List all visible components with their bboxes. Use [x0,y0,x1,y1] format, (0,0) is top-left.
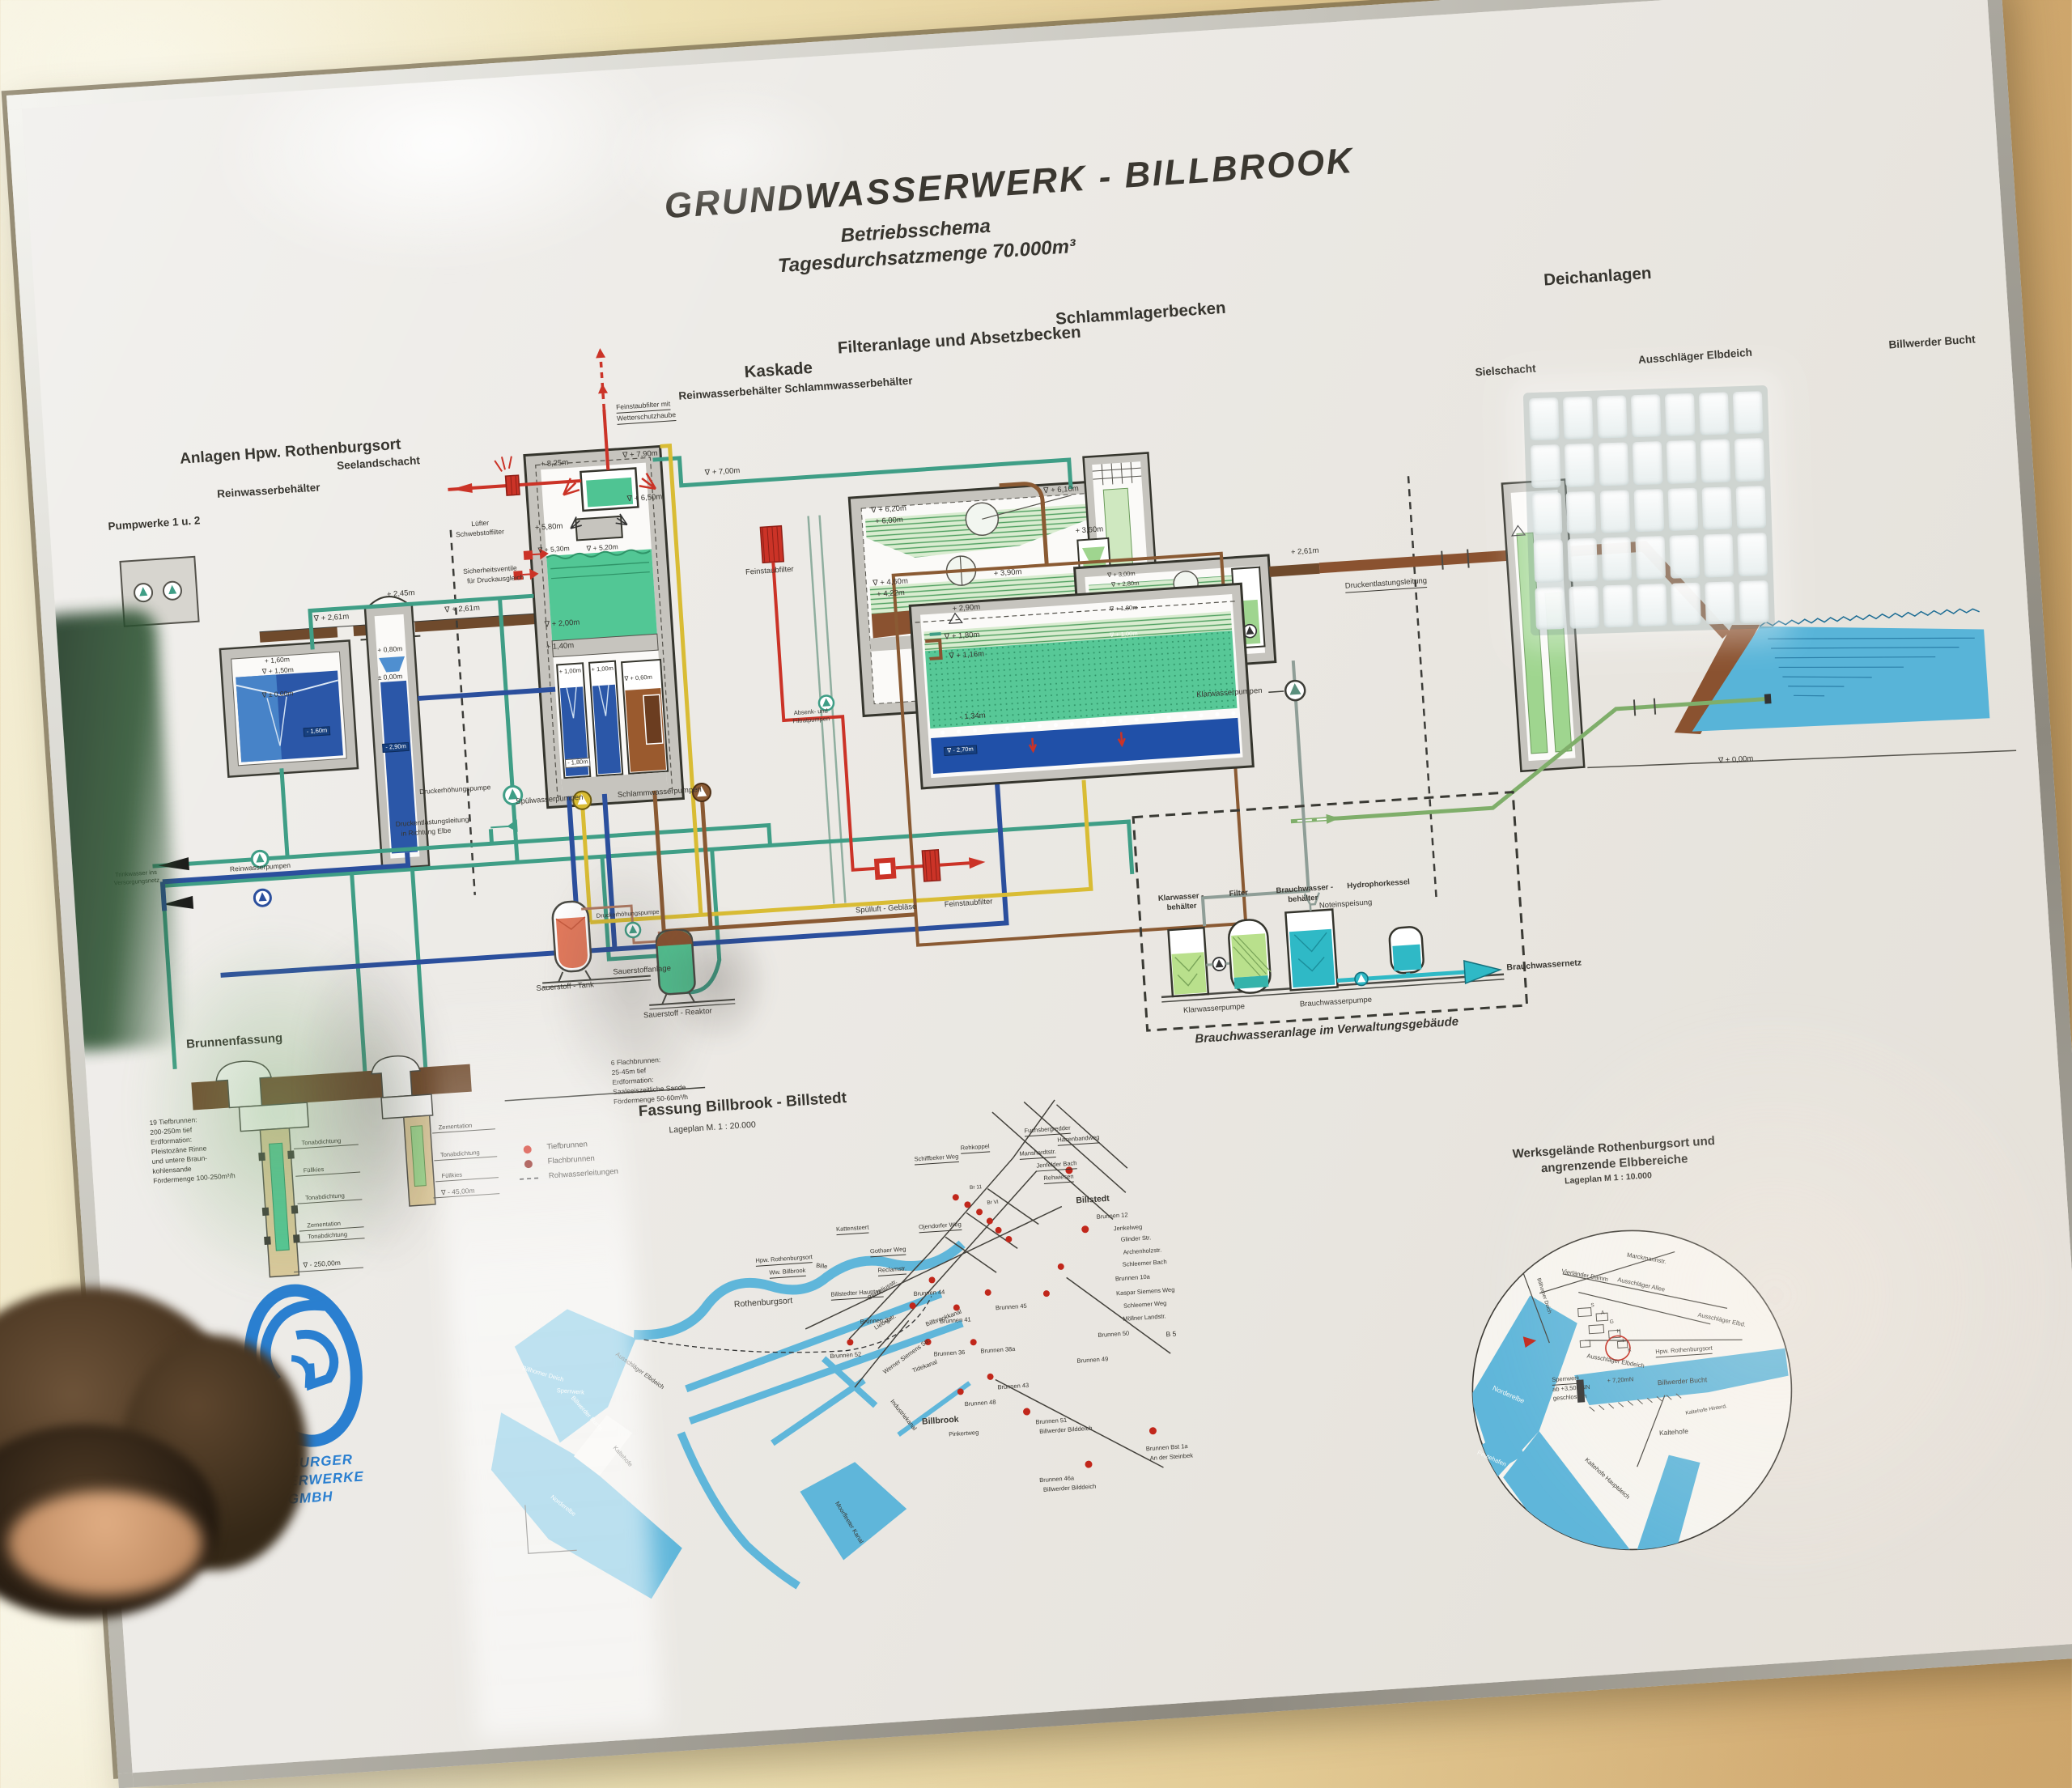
level-100b: + 1,00m [591,665,614,673]
level-600: + 6,00m [875,516,903,527]
level-m290: - 2,90m [382,742,410,753]
level-580: + 5,80m [535,523,563,533]
trinkwasser-arrow-1 [158,857,189,872]
level-825: + 8,25m [540,459,568,469]
schematic-drawing [34,0,2072,1760]
poster-content: GRUNDWASSERWERK - BILLBROOK Betriebssche… [34,0,2072,1760]
map2-letter-h: H [1616,1328,1620,1335]
map2-letter-k: K [1628,1347,1632,1353]
map2-letter-s: S [1590,1302,1594,1309]
section-divider-right [1408,476,1437,902]
picture-frame: GRUNDWASSERWERK - BILLBROOK Betriebssche… [6,0,2072,1788]
ground-right [1269,563,1320,577]
well-label-fuellkies-1: Füllkies [304,1166,325,1174]
bw-filter: Filter [1229,890,1248,899]
level-080: + 0,80m [377,645,403,655]
filter-tank-structure [910,584,1253,788]
map1-br11: Br 11 [970,1184,983,1191]
map1-b5: B 5 [1165,1331,1176,1340]
map1-bille: Bille [816,1263,828,1271]
level-140: + 1,40m [546,642,574,652]
level-290: + 2,90m [952,604,980,614]
pumpwerk-structure [120,557,198,626]
level-390: + 3,90m [994,568,1022,579]
map2-letter-g: G [1610,1319,1615,1326]
level-m180: - 1,80m [565,758,591,768]
map2-letter-a: A [1601,1310,1605,1316]
level-261c: + 2,61m [1291,547,1319,558]
level-100a: + 1,00m [558,668,581,676]
level-360: + 3,60m [1075,525,1103,536]
glass-pane: GRUNDWASSERWERK - BILLBROOK Betriebssche… [22,0,2072,1773]
level-m134: - 1,34m [959,712,986,723]
photo-of-framed-diagram: { "title":{"main":"GRUNDWASSERWERK - BIL… [0,0,2072,1554]
well-label-fuellkies-2: Füllkies [441,1172,462,1180]
map2-letter-i: I [1622,1338,1624,1344]
level-160: + 1,60m [265,656,291,665]
logo-text-3: GMBH [287,1489,333,1507]
hww-logo-mark [236,1279,371,1452]
brunnenfassung-wells [190,1045,504,1281]
map1-brvi: Br VI [987,1200,999,1206]
level-422: + 4,22m [877,589,905,600]
level-m160: - 1,60m [304,726,331,737]
level-000b: ± 0,00m [377,673,402,682]
flow-arrow [490,821,517,832]
label-luefter: Lüfter [471,520,489,529]
glass-block-window-reflection [1523,385,1775,635]
level-245: + 2,45m [387,589,415,600]
